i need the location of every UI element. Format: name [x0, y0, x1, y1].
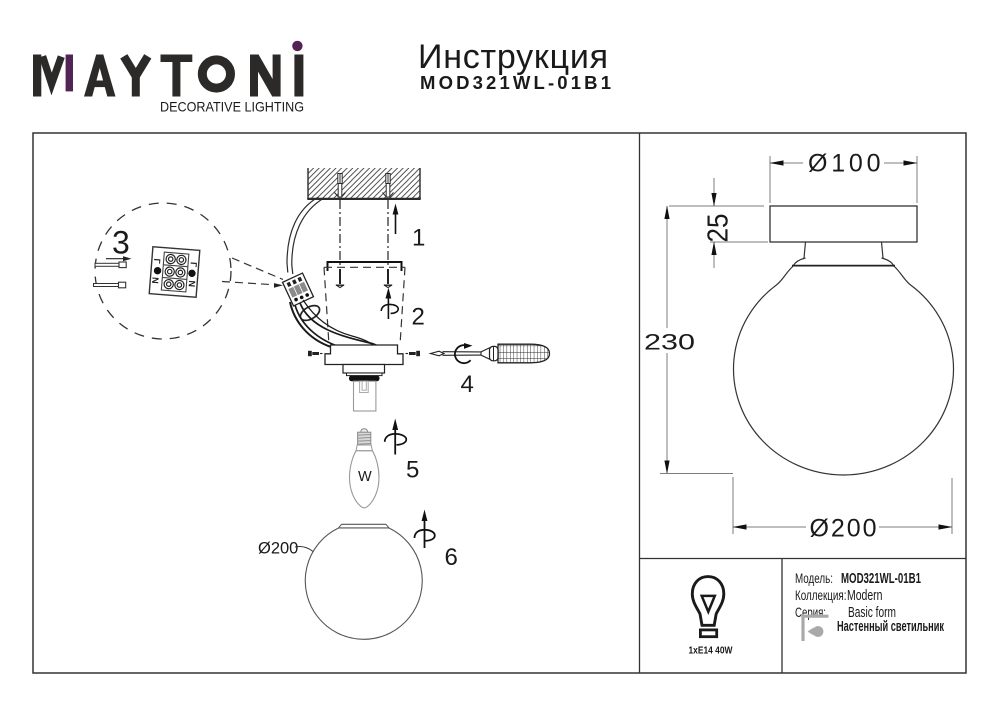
- svg-text:Инструкция: Инструкция: [418, 38, 608, 76]
- svg-text:Коллекция:: Коллекция:: [795, 587, 847, 603]
- svg-text:Modern: Modern: [847, 588, 883, 604]
- svg-text:5: 5: [406, 457, 419, 484]
- svg-text:4: 4: [461, 371, 474, 398]
- svg-text:Г: Г: [152, 258, 162, 264]
- svg-text:25: 25: [703, 214, 735, 243]
- svg-text:MOD321WL-01B1: MOD321WL-01B1: [841, 571, 921, 587]
- svg-text:Г: Г: [188, 262, 198, 268]
- svg-text:1xE14 40W: 1xE14 40W: [689, 645, 733, 656]
- svg-text:Ø100: Ø100: [808, 150, 881, 178]
- svg-text:Модель:: Модель:: [795, 570, 833, 586]
- svg-text:W: W: [358, 469, 372, 485]
- svg-text:2: 2: [412, 304, 425, 331]
- svg-text:N: N: [150, 277, 160, 284]
- svg-text:Настенный светильник: Настенный светильник: [837, 619, 944, 635]
- svg-text:Ø200: Ø200: [258, 540, 298, 558]
- svg-text:DECORATIVE LIGHTING: DECORATIVE LIGHTING: [160, 100, 304, 115]
- svg-text:230: 230: [644, 330, 695, 355]
- svg-text:N: N: [187, 280, 197, 287]
- svg-text:6: 6: [445, 544, 458, 571]
- svg-text:Ø200: Ø200: [810, 515, 877, 543]
- svg-text:3: 3: [112, 225, 130, 261]
- svg-text:1: 1: [412, 225, 425, 252]
